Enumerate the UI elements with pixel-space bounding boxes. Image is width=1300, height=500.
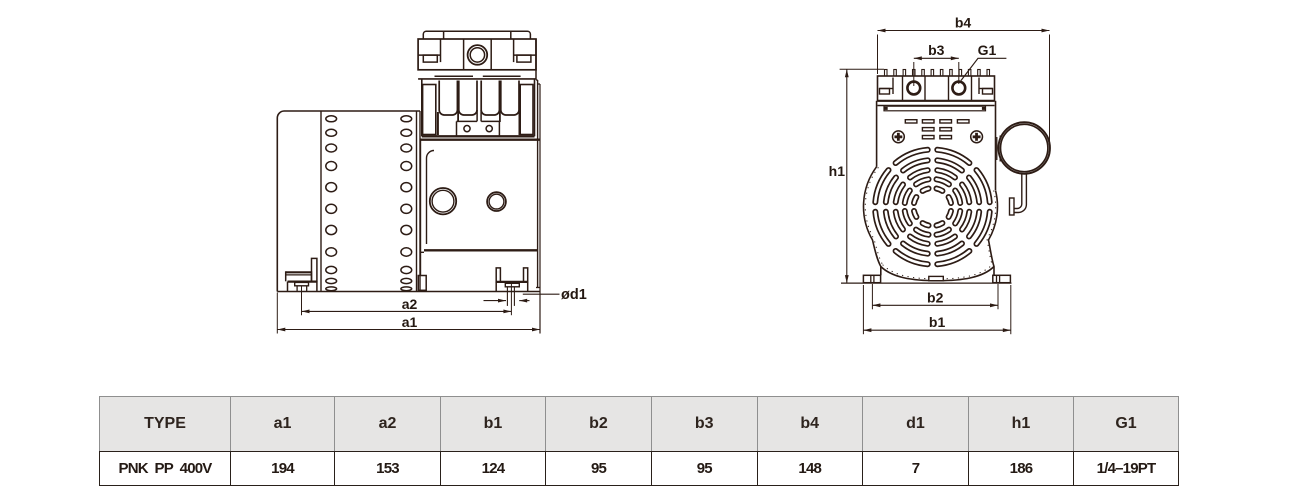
svg-text:b3: b3 [928, 42, 945, 58]
svg-text:b1: b1 [929, 314, 946, 330]
svg-text:a1: a1 [402, 314, 418, 330]
svg-text:h1: h1 [829, 163, 846, 179]
svg-text:ød1: ød1 [561, 287, 587, 303]
svg-text:G1: G1 [978, 42, 997, 58]
svg-text:b2: b2 [927, 289, 944, 305]
svg-text:a2: a2 [402, 296, 418, 312]
svg-text:b4: b4 [955, 14, 972, 30]
